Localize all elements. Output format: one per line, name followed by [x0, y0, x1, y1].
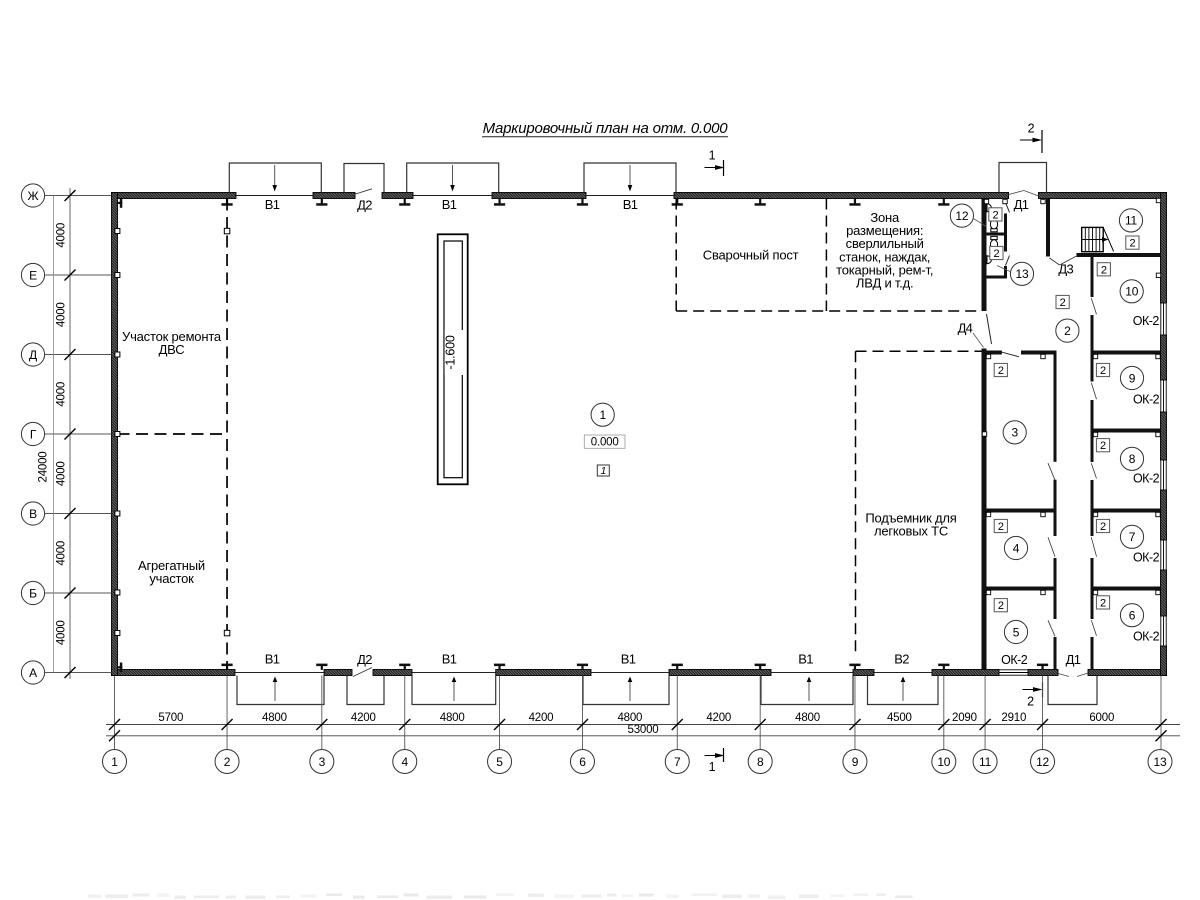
svg-text:2: 2 — [1028, 122, 1035, 136]
svg-text:1: 1 — [111, 755, 118, 769]
svg-text:4000: 4000 — [56, 223, 68, 248]
svg-text:6: 6 — [1129, 609, 1136, 623]
svg-text:4800: 4800 — [440, 712, 465, 724]
svg-text:7: 7 — [1129, 530, 1136, 544]
svg-text:2: 2 — [998, 521, 1004, 533]
svg-text:В1: В1 — [798, 652, 813, 667]
svg-text:Маркировочный план на отм. 0.0: Маркировочный план на отм. 0.000 — [483, 120, 729, 137]
svg-text:Д1: Д1 — [1066, 652, 1081, 667]
svg-text:13: 13 — [1016, 267, 1029, 281]
svg-text:В1: В1 — [442, 197, 457, 212]
svg-text:В1: В1 — [621, 652, 636, 667]
svg-text:В1: В1 — [442, 652, 457, 667]
svg-text:9: 9 — [852, 755, 859, 769]
svg-text:3: 3 — [1011, 426, 1018, 440]
svg-text:4200: 4200 — [351, 712, 376, 724]
svg-text:Д: Д — [29, 348, 37, 362]
svg-text:2: 2 — [1101, 264, 1107, 276]
svg-text:Д2: Д2 — [357, 652, 372, 667]
svg-text:Д3: Д3 — [1058, 262, 1073, 277]
svg-text:Д2: Д2 — [357, 197, 372, 212]
svg-text:ДВС: ДВС — [159, 342, 185, 357]
svg-text:В1: В1 — [265, 197, 280, 212]
svg-text:6: 6 — [579, 755, 586, 769]
svg-text:ЛВД и т.д.: ЛВД и т.д. — [856, 276, 914, 291]
svg-text:1: 1 — [709, 149, 716, 163]
svg-text:4200: 4200 — [706, 712, 731, 724]
svg-text:1: 1 — [600, 465, 606, 477]
svg-text:ОК-2: ОК-2 — [1001, 653, 1028, 667]
svg-text:11: 11 — [1125, 214, 1138, 228]
svg-text:В1: В1 — [623, 197, 638, 212]
svg-text:2090: 2090 — [952, 712, 977, 724]
svg-text:2: 2 — [1100, 440, 1106, 452]
svg-text:2: 2 — [1100, 521, 1106, 533]
svg-text:53000: 53000 — [628, 724, 659, 736]
svg-text:2: 2 — [1064, 324, 1071, 338]
svg-text:5: 5 — [1013, 625, 1020, 639]
svg-text:4000: 4000 — [56, 302, 68, 327]
svg-text:7: 7 — [674, 755, 681, 769]
svg-text:4000: 4000 — [56, 620, 68, 645]
svg-text:1: 1 — [599, 408, 606, 422]
svg-text:9: 9 — [1129, 371, 1136, 385]
svg-text:4000: 4000 — [56, 382, 68, 407]
svg-text:Д4: Д4 — [958, 321, 973, 336]
svg-text:1: 1 — [709, 760, 716, 774]
svg-text:2910: 2910 — [1001, 712, 1026, 724]
svg-text:В2: В2 — [894, 652, 909, 667]
svg-text:2: 2 — [998, 600, 1004, 612]
svg-text:2: 2 — [998, 365, 1004, 377]
svg-text:Б: Б — [29, 586, 37, 600]
svg-text:4800: 4800 — [795, 712, 820, 724]
svg-text:10: 10 — [1125, 285, 1138, 299]
svg-text:ОК-2: ОК-2 — [1133, 551, 1160, 565]
svg-text:12: 12 — [955, 209, 968, 223]
svg-text:2: 2 — [1100, 597, 1106, 609]
svg-text:2: 2 — [992, 209, 998, 221]
svg-text:А: А — [29, 666, 37, 680]
svg-text:12: 12 — [1036, 755, 1049, 769]
svg-text:2: 2 — [224, 755, 231, 769]
svg-text:2: 2 — [993, 248, 999, 260]
svg-text:участок: участок — [149, 571, 194, 586]
svg-text:4800: 4800 — [617, 712, 642, 724]
svg-text:6000: 6000 — [1089, 712, 1114, 724]
svg-text:ОК-2: ОК-2 — [1133, 630, 1160, 644]
svg-text:5: 5 — [496, 755, 503, 769]
svg-text:4000: 4000 — [56, 461, 68, 486]
svg-text:ОК-2: ОК-2 — [1133, 314, 1160, 328]
svg-text:4: 4 — [402, 755, 409, 769]
svg-text:4800: 4800 — [262, 712, 287, 724]
svg-text:-1.600: -1.600 — [444, 335, 458, 369]
svg-text:4500: 4500 — [887, 712, 912, 724]
svg-text:2: 2 — [1100, 365, 1106, 377]
svg-text:2: 2 — [1060, 297, 1066, 309]
svg-text:2: 2 — [1027, 695, 1034, 709]
svg-text:0.000: 0.000 — [591, 437, 619, 449]
svg-text:В: В — [29, 507, 37, 521]
svg-text:Д1: Д1 — [1014, 197, 1029, 212]
svg-text:Е: Е — [29, 268, 37, 282]
svg-text:11: 11 — [979, 755, 992, 769]
svg-text:13: 13 — [1154, 755, 1167, 769]
svg-text:5700: 5700 — [158, 712, 183, 724]
svg-text:3: 3 — [319, 755, 326, 769]
svg-text:4: 4 — [1013, 541, 1020, 555]
svg-text:легковых ТС: легковых ТС — [874, 523, 948, 538]
svg-text:4000: 4000 — [56, 541, 68, 566]
svg-text:4200: 4200 — [529, 712, 554, 724]
svg-text:ОК-2: ОК-2 — [1133, 392, 1160, 406]
svg-text:Сварочный пост: Сварочный пост — [703, 248, 799, 263]
svg-text:10: 10 — [937, 755, 950, 769]
svg-text:ОК-2: ОК-2 — [1133, 472, 1160, 486]
svg-text:24000: 24000 — [38, 452, 50, 483]
svg-text:8: 8 — [1129, 452, 1136, 466]
svg-text:8: 8 — [757, 755, 764, 769]
svg-text:Г: Г — [30, 427, 37, 441]
svg-text:2: 2 — [1129, 238, 1135, 250]
svg-text:В1: В1 — [265, 652, 280, 667]
svg-text:Ж: Ж — [28, 189, 39, 203]
